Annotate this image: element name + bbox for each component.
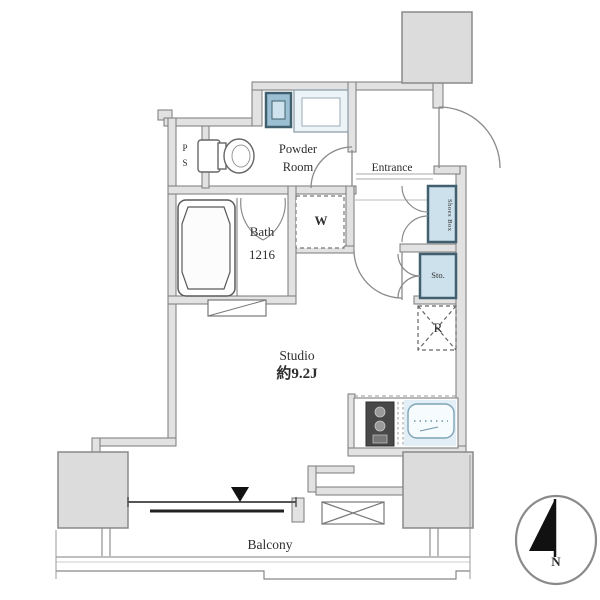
floor-plan-drawing	[0, 0, 600, 600]
entrance-label: Entrance	[354, 160, 430, 177]
refrigerator-label: R	[428, 319, 448, 338]
powder-room-label: Powder Room	[258, 140, 338, 176]
shoes-box-label: Shoes Box	[431, 189, 453, 241]
pipe-space-label: P S	[168, 141, 202, 172]
bath-label: Bath 1216	[222, 220, 302, 267]
floor-plan: Powder Room Entrance P S Bath 1216 W Sho…	[0, 0, 600, 600]
bath-sliding-panel	[208, 300, 266, 316]
balcony-label: Balcony	[230, 535, 310, 555]
storage-label: Sto.	[423, 269, 453, 281]
studio-label: Studio	[257, 346, 337, 366]
balcony-window	[128, 497, 296, 511]
entrance-step	[354, 174, 433, 200]
hall-door	[354, 250, 402, 300]
vanity-sink	[294, 90, 348, 132]
stove	[366, 402, 394, 446]
kitchen-counter	[354, 396, 458, 448]
window-marker-icon	[231, 487, 249, 502]
washer-label: W	[305, 212, 337, 231]
studio-size-label: 約9.2J	[252, 364, 342, 386]
compass-north-label: N	[545, 553, 567, 572]
toilet	[198, 139, 254, 173]
compass-needle-icon	[529, 499, 555, 551]
entrance-door	[439, 107, 500, 168]
kitchen-sink	[408, 404, 454, 438]
water-heater	[266, 93, 291, 127]
ac-unit-space	[322, 502, 384, 524]
